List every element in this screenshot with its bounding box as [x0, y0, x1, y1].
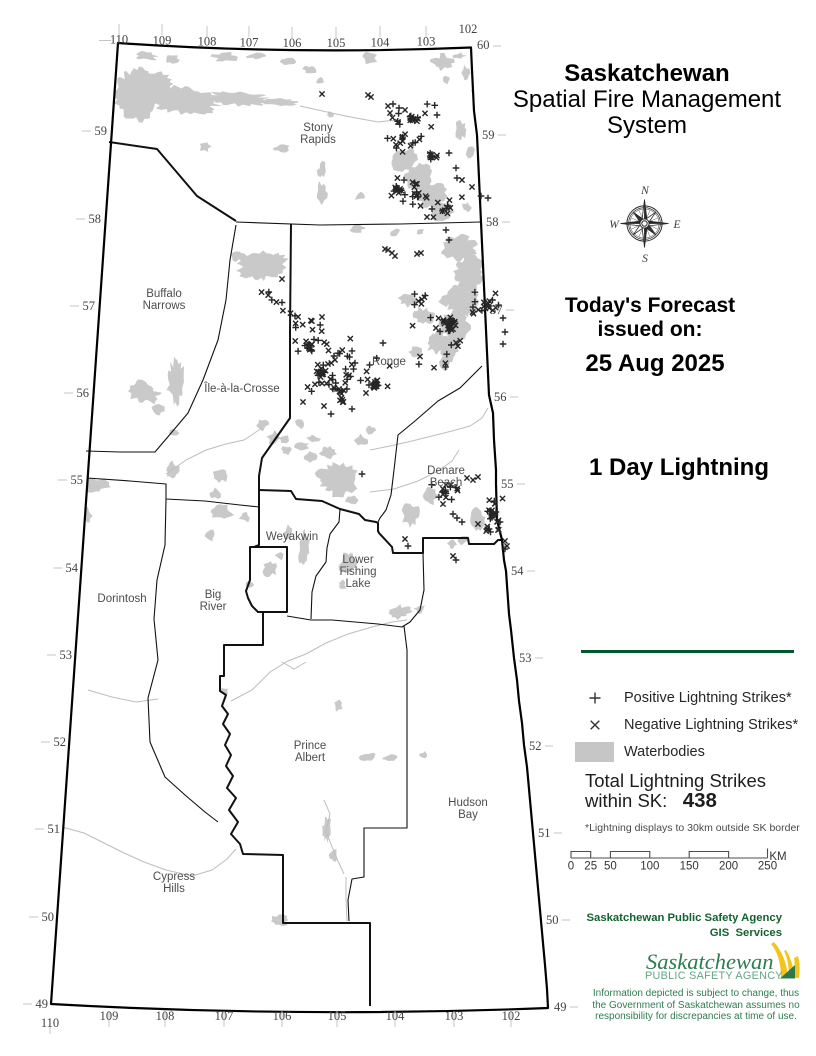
svg-text:56: 56 — [494, 390, 507, 404]
svg-text:55: 55 — [501, 477, 514, 491]
svg-text:110: 110 — [41, 1016, 59, 1030]
svg-text:25: 25 — [584, 861, 597, 873]
svg-text:104: 104 — [371, 36, 391, 50]
svg-text:Beach: Beach — [430, 477, 463, 489]
svg-text:109: 109 — [153, 34, 172, 48]
svg-text:56: 56 — [77, 386, 90, 400]
svg-text:103: 103 — [445, 1009, 464, 1023]
svg-text:Stony: Stony — [303, 122, 333, 134]
svg-text:104: 104 — [386, 1009, 406, 1023]
svg-text:E: E — [672, 219, 680, 231]
svg-text:106: 106 — [273, 1009, 292, 1023]
svg-text:109: 109 — [100, 1009, 119, 1023]
svg-text:Fishing: Fishing — [339, 566, 376, 578]
svg-text:49: 49 — [36, 997, 49, 1011]
svg-text:106: 106 — [283, 36, 302, 50]
svg-text:110: 110 — [110, 33, 128, 47]
svg-text:W: W — [609, 219, 620, 231]
svg-text:Hills: Hills — [163, 883, 185, 895]
svg-text:Albert: Albert — [295, 752, 326, 764]
svg-text:Lake: Lake — [346, 578, 371, 590]
svg-text:Weyakwin: Weyakwin — [266, 531, 318, 543]
svg-text:57: 57 — [490, 303, 503, 317]
svg-text:59: 59 — [95, 124, 108, 138]
svg-text:Buffalo: Buffalo — [146, 288, 182, 300]
svg-text:107: 107 — [240, 36, 259, 50]
svg-text:108: 108 — [156, 1009, 175, 1023]
svg-text:Bay: Bay — [458, 809, 478, 821]
svg-text:Rapids: Rapids — [300, 134, 336, 146]
svg-text:53: 53 — [60, 648, 73, 662]
svg-text:50: 50 — [42, 910, 55, 924]
svg-text:105: 105 — [328, 1009, 347, 1023]
svg-text:S: S — [642, 253, 648, 265]
svg-text:58: 58 — [486, 215, 499, 229]
svg-text:150: 150 — [680, 861, 699, 873]
svg-text:51: 51 — [538, 826, 551, 840]
svg-text:102: 102 — [459, 22, 478, 36]
svg-text:River: River — [200, 601, 227, 613]
svg-text:Ronge: Ronge — [372, 356, 406, 368]
svg-text:103: 103 — [417, 35, 436, 49]
svg-text:58: 58 — [89, 212, 102, 226]
svg-text:105: 105 — [327, 36, 346, 50]
svg-text:Narrows: Narrows — [143, 300, 186, 312]
svg-text:Île-à-la-Crosse: Île-à-la-Crosse — [203, 382, 279, 395]
svg-text:52: 52 — [54, 735, 67, 749]
svg-text:50: 50 — [604, 861, 617, 873]
svg-text:53: 53 — [519, 651, 532, 665]
svg-text:Dorintosh: Dorintosh — [97, 593, 146, 605]
svg-text:100: 100 — [640, 861, 659, 873]
svg-text:54: 54 — [66, 561, 79, 575]
svg-text:57: 57 — [83, 299, 96, 313]
svg-text:54: 54 — [511, 564, 524, 578]
svg-text:102: 102 — [502, 1009, 521, 1023]
svg-text:52: 52 — [529, 739, 542, 753]
svg-text:Prince: Prince — [294, 740, 327, 752]
svg-text:200: 200 — [719, 861, 738, 873]
svg-text:59: 59 — [482, 128, 495, 142]
svg-text:51: 51 — [48, 822, 61, 836]
svg-text:108: 108 — [198, 35, 217, 49]
svg-text:55: 55 — [71, 473, 84, 487]
svg-text:Hudson: Hudson — [448, 797, 488, 809]
svg-text:Cypress: Cypress — [153, 871, 195, 883]
svg-text:PUBLIC SAFETY AGENCY: PUBLIC SAFETY AGENCY — [645, 970, 783, 982]
svg-text:KM: KM — [769, 851, 786, 863]
svg-text:0: 0 — [568, 861, 574, 873]
svg-text:Big: Big — [205, 589, 222, 601]
svg-text:N: N — [640, 185, 650, 197]
svg-text:60: 60 — [477, 38, 490, 52]
svg-text:Denare: Denare — [427, 465, 465, 477]
svg-text:107: 107 — [215, 1009, 234, 1023]
svg-text:Lower: Lower — [342, 554, 373, 566]
